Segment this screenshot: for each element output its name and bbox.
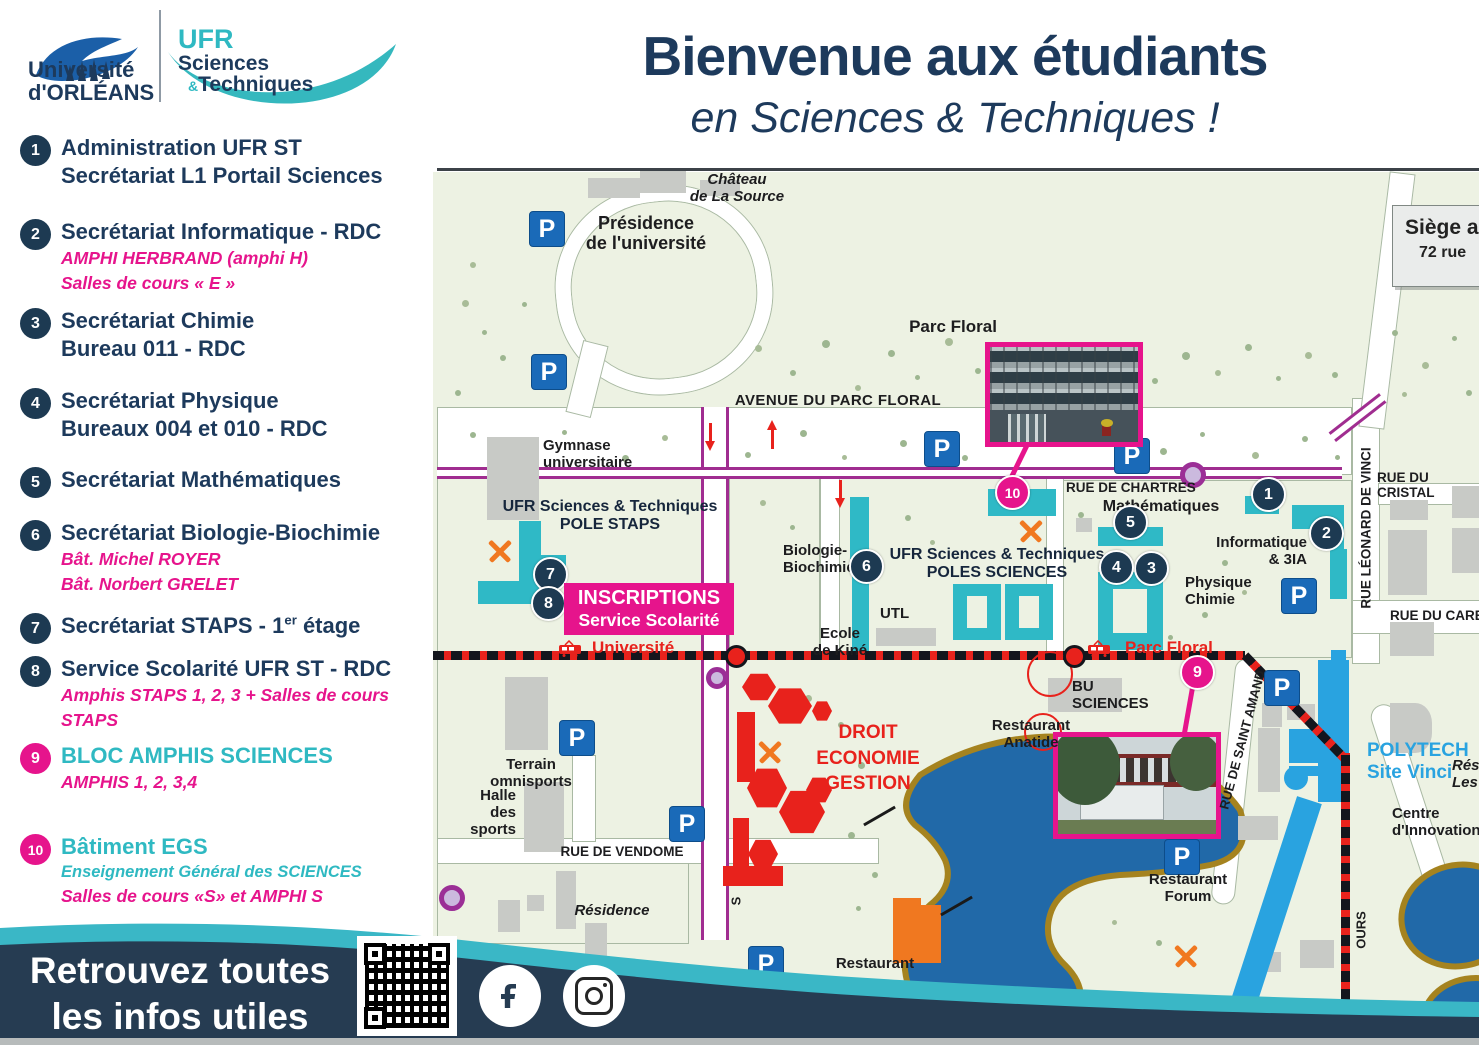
legend-title: Secrétariat Physique — [61, 387, 432, 415]
map-marker-4: 4 — [1099, 550, 1134, 585]
legend-sub: Bât. Michel ROYER — [61, 547, 432, 572]
tram-stop-parc-floral — [1063, 645, 1086, 668]
legend-badge-9: 9 — [20, 743, 51, 774]
photo-amphis-building — [1053, 732, 1221, 839]
tree-dot — [790, 525, 795, 530]
tree-dot — [462, 300, 469, 307]
map-marker-6: 6 — [849, 549, 884, 584]
label-halle: Halle des sports — [470, 788, 516, 839]
staps-building — [478, 581, 539, 604]
tree-dot — [962, 455, 968, 461]
legend-title: Bureau 011 - RDC — [61, 335, 432, 363]
tree-dot — [1152, 378, 1158, 384]
legend-sub: Amphis STAPS 1, 2, 3 + Salles de cours — [61, 683, 432, 708]
legend-title: Administration UFR ST — [61, 134, 432, 162]
legend-item-6: 6 Secrétariat Biologie-Biochimie Bât. Mi… — [20, 519, 432, 596]
map-marker-3: 3 — [1134, 551, 1169, 586]
legend-item-5: 5 Secrétariat Mathématiques — [20, 466, 432, 498]
tree-dot — [1302, 436, 1308, 442]
tree-dot — [856, 906, 861, 911]
label-rue-de-chartres: RUE DE CHARTRES — [1066, 480, 1196, 495]
page-title: Bienvenue aux étudiants — [575, 24, 1335, 88]
legend-sub: Bât. Norbert GRELET — [61, 572, 432, 597]
page-subtitle: en Sciences & Techniques ! — [575, 94, 1335, 143]
tree-dot — [848, 832, 855, 839]
stop-purple — [439, 885, 465, 911]
polytech-building — [1284, 766, 1308, 790]
road — [572, 755, 596, 842]
tree-dot — [1200, 432, 1205, 437]
label-informatique: Informatique & 3IA — [1207, 535, 1307, 569]
label-gymnase: Gymnase universitaire — [543, 438, 632, 472]
building-gray — [588, 178, 640, 198]
ufr-line3: &Techniques — [178, 74, 313, 95]
tree-dot — [930, 540, 935, 545]
ufr-line2: Sciences — [178, 53, 313, 74]
label-droit-economie-gestion: DROIT ECONOMIE GESTION — [816, 720, 919, 797]
tree-dot — [745, 452, 751, 458]
tree-dot — [800, 430, 807, 437]
legend-item-10: 10 Bâtiment EGS Enseignement Général des… — [20, 833, 432, 908]
legend-badge-6: 6 — [20, 520, 51, 551]
tree-dot — [900, 440, 907, 447]
tree-dot — [1182, 352, 1190, 360]
legend-item-1: 1 Administration UFR ST Secrétariat L1 P… — [20, 134, 432, 190]
label-presidence: Présidence de l'université — [586, 213, 706, 254]
droit-building — [737, 712, 755, 782]
utl-building — [876, 628, 936, 646]
tree-dot — [1215, 370, 1221, 376]
building-gray — [527, 895, 544, 911]
tree-dot — [455, 390, 461, 396]
tram-icon — [1086, 640, 1114, 657]
tree-dot — [470, 262, 476, 268]
label-terrain: Terrain omnisports — [490, 757, 572, 791]
tree-dot — [1252, 452, 1259, 459]
legend-title: Secrétariat Chimie — [61, 307, 432, 335]
map-top-border — [437, 168, 1479, 171]
map-marker-5: 5 — [1113, 505, 1148, 540]
legend-sub: Enseignement Général des SCIENCES — [61, 861, 432, 884]
facebook-icon[interactable] — [479, 965, 541, 1027]
courtyard — [1019, 596, 1039, 628]
tree-dot — [1276, 376, 1281, 381]
label-rue-du-cristal: RUE DU CRISTAL — [1377, 470, 1479, 501]
label-restaurant-forum: Restaurant Forum — [1149, 872, 1227, 906]
tree-dot — [1422, 362, 1429, 369]
tram-icon — [557, 640, 585, 657]
tree-dot — [1160, 448, 1167, 455]
halle-building — [524, 782, 564, 852]
tree-dot — [915, 375, 920, 380]
legend-badge-5: 5 — [20, 467, 51, 498]
photo-egs-building — [985, 342, 1143, 447]
inscriptions-line1: INSCRIPTIONS — [564, 586, 734, 610]
tree-dot — [790, 370, 796, 376]
parking-icon: P — [1281, 578, 1317, 614]
building-gray — [1258, 728, 1280, 792]
legend-title: Secrétariat L1 Portail Sciences — [61, 162, 432, 190]
tree-dot — [662, 435, 668, 441]
legend-sub: Salles de cours « E » — [61, 271, 432, 296]
label-physique-chimie: Physique Chimie — [1185, 575, 1252, 609]
building-gray — [1388, 530, 1427, 595]
tree-dot — [888, 350, 895, 357]
informatique-building — [1330, 549, 1347, 599]
instagram-icon[interactable] — [563, 965, 625, 1027]
courtyard — [967, 596, 987, 628]
label-street-fragment-s: S — [730, 897, 745, 906]
ufr-logo: UFR Sciences &Techniques — [178, 26, 313, 95]
qr-finder-icon — [428, 943, 450, 965]
legend-item-9: 9 BLOC AMPHIS SCIENCES AMPHIS 1, 2, 3,4 — [20, 742, 432, 794]
droit-building — [723, 866, 783, 886]
tree-dot — [1335, 455, 1340, 460]
tree-dot — [1402, 392, 1407, 397]
siege-box: Siège a 72 rue — [1392, 205, 1479, 287]
ufr-ampersand: & — [188, 78, 198, 94]
label-rue-du-carbone: RUE DU CARBO — [1390, 608, 1479, 623]
tree-dot — [1202, 612, 1208, 618]
label-chateau: Château de La Source — [690, 172, 784, 206]
terrain-building — [505, 677, 548, 750]
legend-badge-2: 2 — [20, 219, 51, 250]
label-residence-les: Rési Les — [1452, 758, 1479, 792]
parking-icon: P — [1264, 670, 1300, 706]
label-restaurant-anatide: Restaurant Anatide — [992, 718, 1070, 752]
map-marker-9: 9 — [1180, 655, 1215, 690]
legend-item-3: 3 Secrétariat Chimie Bureau 011 - RDC — [20, 307, 432, 363]
label-centre-innovation: Centre d'Innovation — [1392, 806, 1479, 840]
legend-badge-8: 8 — [20, 656, 51, 687]
map-marker-2: 2 — [1309, 516, 1344, 551]
building-gray — [1262, 703, 1282, 727]
tree-dot — [482, 330, 487, 335]
label-rue-leonard-de-vinci: RUE LÉONARD DE VINCI — [1358, 447, 1373, 608]
label-poles-sciences: UFR Sciences & Techniques POLES SCIENCES — [890, 546, 1105, 582]
tree-dot — [945, 338, 953, 346]
legend-title: Secrétariat Mathématiques — [61, 466, 432, 494]
label-rue-de-vendome: RUE DE VENDOME — [560, 844, 683, 859]
bottom-edge — [0, 1038, 1479, 1045]
legend-item-2: 2 Secrétariat Informatique - RDC AMPHI H… — [20, 218, 432, 295]
siege-line2: 72 rue — [1419, 244, 1479, 262]
label-stop-universite: Université — [592, 638, 674, 657]
legend-item-8: 8 Service Scolarité UFR ST - RDC Amphis … — [20, 655, 432, 732]
footer-tagline: Retrouvez toutes les infos utiles — [10, 948, 350, 1041]
legend-badge-4: 4 — [20, 388, 51, 419]
tree-dot — [562, 430, 567, 435]
legend-sub: STAPS — [61, 708, 432, 733]
legend-badge-3: 3 — [20, 308, 51, 339]
siege-line1: Siège a — [1405, 216, 1479, 240]
qr-finder-icon — [364, 943, 386, 965]
building-gray — [640, 171, 686, 193]
building-gray — [1452, 528, 1479, 573]
tree-dot — [1332, 372, 1338, 378]
tree-dot — [760, 500, 766, 506]
legend-title: Secrétariat STAPS - 1er étage — [61, 612, 432, 640]
label-ecole-kine: Ecole de Kiné — [813, 626, 867, 660]
label-bu-sciences: BU SCIENCES — [1072, 679, 1149, 713]
label-parc-floral: Parc Floral — [909, 317, 997, 336]
parking-icon: P — [669, 806, 705, 842]
tree-dot — [1452, 336, 1457, 341]
parking-icon: P — [559, 720, 595, 756]
building-gray — [1390, 622, 1434, 656]
map-marker-10: 10 — [995, 475, 1030, 510]
stop-purple — [706, 667, 728, 689]
tree-dot — [842, 455, 847, 460]
label-residence: Résidence — [574, 903, 649, 920]
parking-icon: P — [1164, 839, 1200, 875]
logo-divider — [159, 10, 161, 102]
parking-icon: P — [924, 431, 960, 467]
tree-dot — [975, 368, 981, 374]
legend-item-7: 7 Secrétariat STAPS - 1er étage — [20, 612, 432, 644]
building-gray — [1238, 816, 1278, 840]
label-utl: UTL — [880, 606, 909, 623]
map-marker-8: 8 — [531, 586, 566, 621]
legend-title: Bureaux 004 et 010 - RDC — [61, 415, 432, 443]
ufr-line1: UFR — [178, 26, 313, 53]
parking-icon: P — [531, 354, 567, 390]
qr-code[interactable] — [357, 936, 457, 1036]
legend-title: Service Scolarité UFR ST - RDC — [61, 655, 432, 683]
tram-stop-universite — [725, 645, 748, 668]
map-marker-1: 1 — [1251, 477, 1286, 512]
legend-sub: AMPHI HERBRAND (amphi H) — [61, 246, 432, 271]
tree-dot — [905, 515, 911, 521]
tree-dot — [1392, 330, 1398, 336]
label-avenue-parc-floral: AVENUE DU PARC FLORAL — [735, 393, 941, 410]
qr-finder-icon — [364, 1007, 386, 1029]
tree-dot — [1466, 390, 1472, 396]
universite-orleans-wordmark: Université d'ORLÉANS — [28, 58, 154, 104]
legend-title: Secrétariat Informatique - RDC — [61, 218, 432, 246]
legend-title: Bâtiment EGS — [61, 833, 432, 861]
courtyard — [1113, 589, 1147, 633]
legend-badge-10: 10 — [20, 834, 51, 865]
inscriptions-box: INSCRIPTIONS Service Scolarité — [564, 583, 734, 635]
tree-dot — [1245, 344, 1252, 351]
legend-badge-1: 1 — [20, 135, 51, 166]
legend-title: Secrétariat Biologie-Biochimie — [61, 519, 432, 547]
poster: Université d'ORLÉANS UFR Sciences &Techn… — [0, 0, 1479, 1045]
tree-dot — [470, 432, 476, 438]
legend-item-4: 4 Secrétariat Physique Bureaux 004 et 01… — [20, 387, 432, 443]
parking-icon: P — [529, 211, 565, 247]
legend-sub: AMPHIS 1, 2, 3,4 — [61, 770, 432, 795]
tree-dot — [500, 355, 506, 361]
legend-badge-7: 7 — [20, 613, 51, 644]
inscriptions-line2: Service Scolarité — [564, 610, 734, 631]
label-biologie: Biologie- Biochimie — [783, 543, 845, 577]
tree-dot — [855, 385, 861, 391]
tree-dot — [522, 302, 527, 307]
building-gray — [1390, 500, 1428, 520]
legend-sub: Salles de cours «S» et AMPHI S — [61, 884, 432, 909]
building-gray — [1076, 518, 1092, 532]
label-pole-staps: UFR Sciences & Techniques POLE STAPS — [503, 498, 718, 534]
tree-dot — [822, 340, 830, 348]
tree-dot — [1305, 352, 1312, 359]
legend-title: BLOC AMPHIS SCIENCES — [61, 742, 432, 770]
tree-dot — [755, 345, 762, 352]
